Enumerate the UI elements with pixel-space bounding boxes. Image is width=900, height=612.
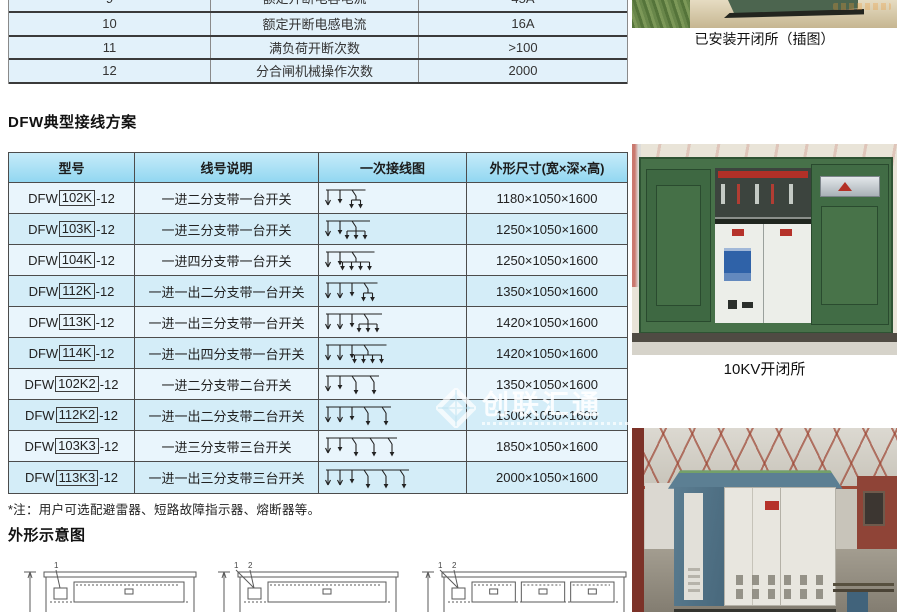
red-brick-wall xyxy=(857,476,897,553)
diagram-cell xyxy=(319,245,467,275)
spec-row: 9额定开断电容电流45A xyxy=(9,0,627,13)
spec-cell: 11 xyxy=(9,37,211,59)
model-cell: DFW113K-12 xyxy=(9,307,135,337)
spec-cell: 满负荷开断次数 xyxy=(211,37,419,59)
dimensions-cell: 1420×1050×1600 xyxy=(467,307,627,337)
photo-10kv-switchgear xyxy=(632,144,897,355)
diagram-cell xyxy=(319,338,467,368)
wiring-header-cell: 型号 xyxy=(9,153,135,182)
svg-text:1: 1 xyxy=(438,561,443,570)
dimensions-cell: 1850×1050×1600 xyxy=(467,431,627,461)
diagram-cell xyxy=(319,214,467,244)
spec-cell: 额定开断电感电流 xyxy=(211,13,419,35)
line-description-cell: 一进一出三分支带三台开关 xyxy=(135,462,319,493)
spec-cell: 45A xyxy=(419,0,627,11)
outline-drawing: 1 xyxy=(20,558,202,612)
dimensions-cell: 1350×1050×1600 xyxy=(467,276,627,306)
photo-watermark xyxy=(833,3,891,10)
svg-text:1: 1 xyxy=(234,561,239,570)
spec-cell: 额定开断电容电流 xyxy=(211,0,419,11)
wiring-header-cell: 线号说明 xyxy=(135,153,319,182)
model-cell: DFW113K3-12 xyxy=(9,462,135,493)
outline-drawing: 21 xyxy=(214,558,404,612)
wiring-diagram xyxy=(320,307,466,337)
model-cell: DFW114K-12 xyxy=(9,338,135,368)
photo-installed-switchgear xyxy=(632,0,897,28)
cabinet-opening xyxy=(715,168,811,324)
outline-drawing: 21 xyxy=(418,558,632,612)
wiring-section-title: DFW典型接线方案 xyxy=(8,111,137,132)
line-description-cell: 一进一出四分支带一台开关 xyxy=(135,338,319,368)
switch-panels xyxy=(715,224,811,324)
cabinet-right-door xyxy=(811,164,889,325)
wiring-table-body: DFW102K-12一进二分支带一台开关1180×1050×1600DFW103… xyxy=(9,183,627,493)
spec-cell: 10 xyxy=(9,13,211,35)
steel-beams xyxy=(833,583,894,586)
spec-cell: 分合闸机械操作次数 xyxy=(211,60,419,82)
wiring-table-row: DFW102K2-12一进二分支带二台开关1350×1050×1600 xyxy=(9,369,627,400)
outline-section-title: 外形示意图 xyxy=(8,524,86,545)
instrument-panel xyxy=(715,168,811,219)
cabinet-shadow xyxy=(632,333,897,342)
svg-text:2: 2 xyxy=(452,561,457,570)
blue-substation-cabinet xyxy=(674,470,836,612)
model-cell: DFW112K-12 xyxy=(9,276,135,306)
dimensions-cell: 1180×1050×1600 xyxy=(467,183,627,213)
panel-slot xyxy=(742,302,754,308)
dimensions-cell: 1500×1050×1600 xyxy=(467,400,627,430)
wiring-diagram xyxy=(320,338,466,368)
warning-plate xyxy=(820,176,880,197)
wiring-table-row: DFW112K-12一进一出二分支带一台开关1350×1050×1600 xyxy=(9,276,627,307)
wiring-diagram xyxy=(320,400,466,430)
wiring-diagram xyxy=(320,214,466,244)
model-cell: DFW103K-12 xyxy=(9,214,135,244)
wiring-diagram xyxy=(320,183,466,213)
wiring-table-row: DFW114K-12一进一出四分支带一台开关1420×1050×1600 xyxy=(9,338,627,369)
svg-text:2: 2 xyxy=(248,561,253,570)
wiring-table-row: DFW103K-12一进三分支带一台开关1250×1050×1600 xyxy=(9,214,627,245)
spec-table: 9额定开断电容电流45A10额定开断电感电流16A11满负荷开断次数>10012… xyxy=(8,0,628,84)
line-description-cell: 一进二分支带一台开关 xyxy=(135,183,319,213)
diagram-cell xyxy=(319,400,467,430)
line-description-cell: 一进二分支带二台开关 xyxy=(135,369,319,399)
diagram-cell xyxy=(319,276,467,306)
side-door xyxy=(684,493,703,600)
cabinet-left-door xyxy=(646,169,711,321)
red-steel-column xyxy=(632,428,644,612)
substation-roof xyxy=(668,470,843,488)
wiring-header-cell: 外形尺寸(宽×深×高) xyxy=(467,153,627,182)
diagram-cell xyxy=(319,431,467,461)
model-cell: DFW103K3-12 xyxy=(9,431,135,461)
footnote: *注：用户可选配避雷器、短路故障指示器、熔断器等。 xyxy=(8,499,320,518)
diagram-cell xyxy=(319,183,467,213)
wiring-table-row: DFW113K3-12一进一出三分支带三台开关2000×1050×1600 xyxy=(9,462,627,493)
model-cell: DFW112K2-12 xyxy=(9,400,135,430)
line-description-cell: 一进一出二分支带二台开关 xyxy=(135,400,319,430)
wiring-table-row: DFW103K3-12一进三分支带三台开关1850×1050×1600 xyxy=(9,431,627,462)
bucket xyxy=(847,592,868,612)
panel-label xyxy=(732,229,744,236)
wiring-table-row: DFW104K-12一进四分支带一台开关1250×1050×1600 xyxy=(9,245,627,276)
photo-caption-installed: 已安装开闭所（插图） xyxy=(632,29,897,49)
spec-cell: >100 xyxy=(419,37,627,59)
spec-row: 12分合闸机械操作次数2000 xyxy=(9,60,627,84)
door-label xyxy=(765,501,780,510)
wiring-diagram xyxy=(320,369,466,399)
wiring-table-row: DFW112K2-12一进一出二分支带二台开关1500×1050×1600 xyxy=(9,400,627,431)
panel-label xyxy=(780,229,792,236)
diagram-cell xyxy=(319,307,467,337)
model-cell: DFW104K-12 xyxy=(9,245,135,275)
green-cabinet xyxy=(639,157,893,334)
wiring-diagram xyxy=(320,245,466,275)
catalog-page: 9额定开断电容电流45A10额定开断电感电流16A11满负荷开断次数>10012… xyxy=(0,0,900,612)
panel-slot xyxy=(728,300,737,309)
model-cell: DFW102K2-12 xyxy=(9,369,135,399)
wiring-diagram xyxy=(320,276,466,306)
wiring-table: 型号线号说明一次接线图外形尺寸(宽×深×高) DFW102K-12一进二分支带一… xyxy=(8,152,628,494)
spec-cell: 2000 xyxy=(419,60,627,82)
svg-text:1: 1 xyxy=(54,561,59,570)
line-description-cell: 一进四分支带一台开关 xyxy=(135,245,319,275)
blue-notice-card xyxy=(724,248,751,282)
line-description-cell: 一进一出三分支带一台开关 xyxy=(135,307,319,337)
spec-cell: 16A xyxy=(419,13,627,35)
dimensions-cell: 1350×1050×1600 xyxy=(467,369,627,399)
photo-factory-substation xyxy=(632,428,897,612)
dimensions-cell: 2000×1050×1600 xyxy=(467,462,627,493)
line-description-cell: 一进三分支带一台开关 xyxy=(135,214,319,244)
dimensions-cell: 1250×1050×1600 xyxy=(467,245,627,275)
line-description-cell: 一进三分支带三台开关 xyxy=(135,431,319,461)
dimensions-cell: 1250×1050×1600 xyxy=(467,214,627,244)
grass xyxy=(632,0,690,28)
wiring-table-row: DFW113K-12一进一出三分支带一台开关1420×1050×1600 xyxy=(9,307,627,338)
spec-cell: 9 xyxy=(9,0,211,11)
wiring-diagram xyxy=(320,431,466,461)
wiring-header-cell: 一次接线图 xyxy=(319,153,467,182)
line-description-cell: 一进一出二分支带一台开关 xyxy=(135,276,319,306)
door-panel xyxy=(821,206,878,305)
wiring-table-header: 型号线号说明一次接线图外形尺寸(宽×深×高) xyxy=(9,153,627,183)
spec-row: 10额定开断电感电流16A xyxy=(9,13,627,37)
outline-drawings: 12121 xyxy=(8,558,633,612)
photo-caption-10kv: 10KV开闭所 xyxy=(632,358,897,379)
diagram-cell xyxy=(319,369,467,399)
wiring-table-row: DFW102K-12一进二分支带一台开关1180×1050×1600 xyxy=(9,183,627,214)
door-louvers xyxy=(736,575,825,603)
spec-row: 11满负荷开断次数>100 xyxy=(9,37,627,61)
spec-cell: 12 xyxy=(9,60,211,82)
dimensions-cell: 1420×1050×1600 xyxy=(467,338,627,368)
wiring-diagram xyxy=(320,463,466,493)
substation-side-panel xyxy=(674,487,724,606)
model-cell: DFW102K-12 xyxy=(9,183,135,213)
diagram-cell xyxy=(319,462,467,493)
